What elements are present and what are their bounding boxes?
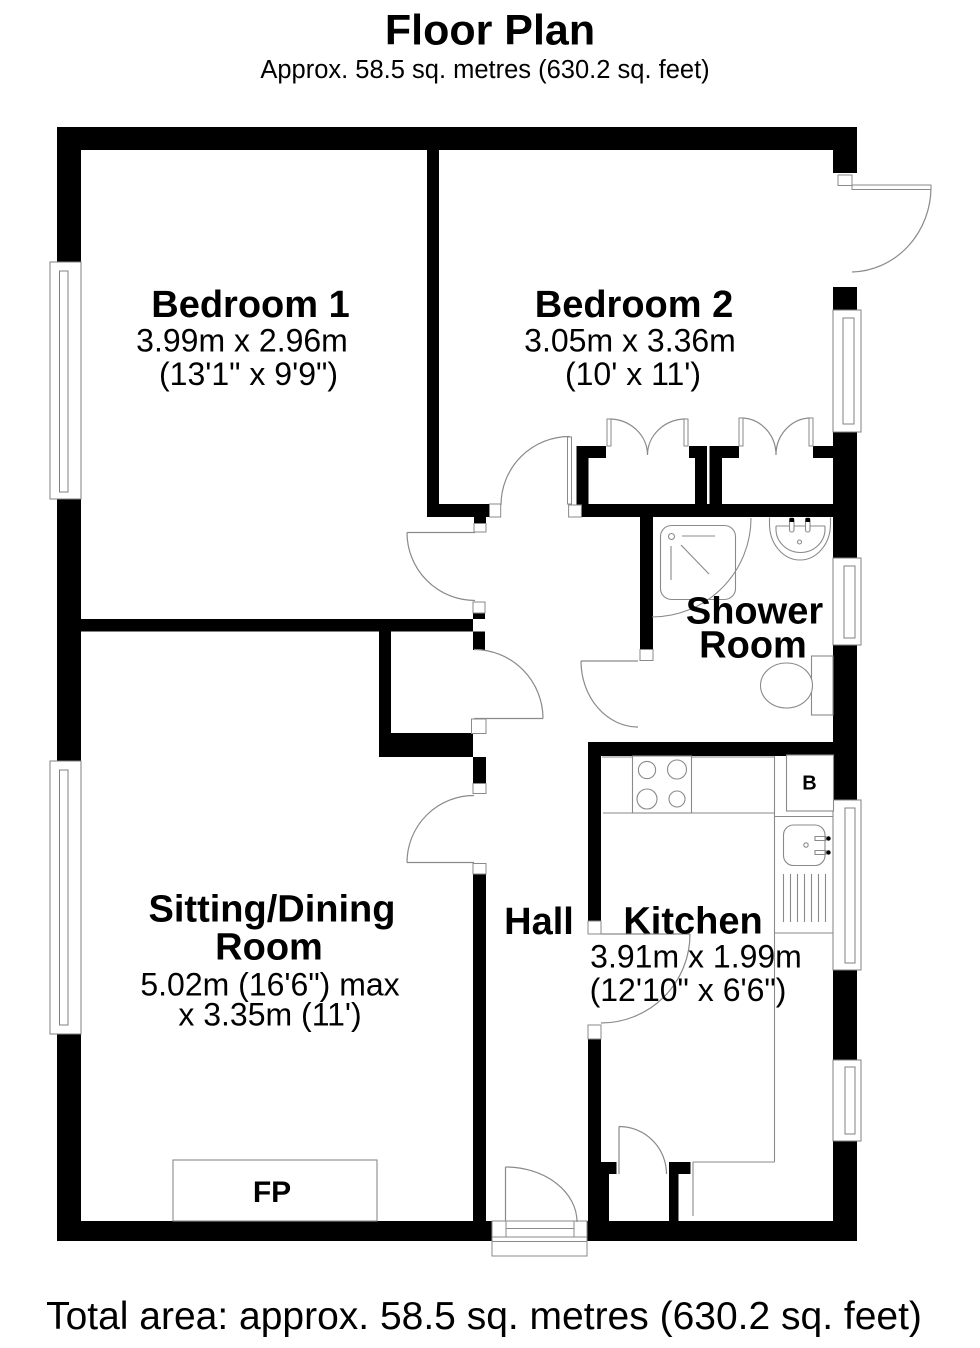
svg-text:(12'10" x 6'6"): (12'10" x 6'6") <box>590 972 787 1008</box>
svg-text:Approx. 58.5 sq. metres (630.2: Approx. 58.5 sq. metres (630.2 sq. feet) <box>260 56 709 84</box>
svg-text:x 3.35m (11'): x 3.35m (11') <box>178 997 361 1033</box>
svg-text:Total area: approx. 58.5 sq. m: Total area: approx. 58.5 sq. metres (630… <box>46 1295 922 1338</box>
svg-text:Hall: Hall <box>504 901 574 943</box>
svg-text:Room: Room <box>699 625 807 667</box>
svg-text:FP: FP <box>253 1176 291 1209</box>
svg-text:3.91m x 1.99m: 3.91m x 1.99m <box>590 939 802 975</box>
svg-text:Bedroom 2: Bedroom 2 <box>535 284 733 326</box>
svg-text:B: B <box>802 773 816 795</box>
svg-text:Kitchen: Kitchen <box>623 901 762 943</box>
svg-text:3.99m x 2.96m: 3.99m x 2.96m <box>136 323 348 359</box>
svg-text:(13'1" x 9'9"): (13'1" x 9'9") <box>159 356 338 392</box>
svg-text:Bedroom 1: Bedroom 1 <box>151 284 349 326</box>
svg-text:Floor Plan: Floor Plan <box>385 7 595 55</box>
svg-text:3.05m x 3.36m: 3.05m x 3.36m <box>524 323 736 359</box>
svg-text:(10' x 11'): (10' x 11') <box>565 356 701 392</box>
svg-text:Room: Room <box>215 927 323 969</box>
svg-text:Sitting/Dining: Sitting/Dining <box>149 889 396 931</box>
